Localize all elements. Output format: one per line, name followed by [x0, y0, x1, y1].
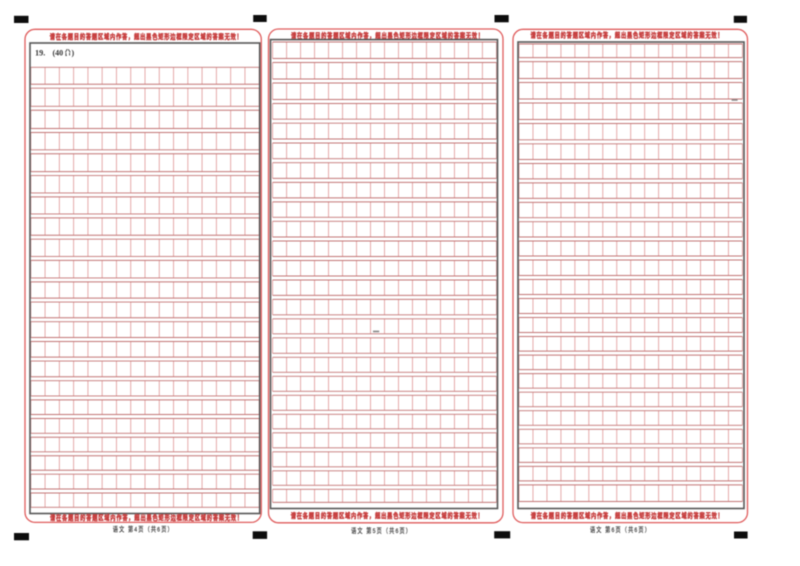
svg-text:请在各题目的答题区域内作答，超出黑色矩形边框限定区域的答案无: 请在各题目的答题区域内作答，超出黑色矩形边框限定区域的答案无效！	[291, 31, 484, 40]
svg-text:19.: 19.	[35, 48, 45, 57]
svg-text:语文 第6页（共6页）: 语文 第6页（共6页）	[590, 525, 651, 534]
svg-text:请在各题目的答题区域内作答，超出黑色矩形边框限定区域的答案无: 请在各题目的答题区域内作答，超出黑色矩形边框限定区域的答案无效！	[531, 30, 724, 39]
svg-text:请在各题目的答题区域内作答，超出黑色矩形边框限定区域的答案无: 请在各题目的答题区域内作答，超出黑色矩形边框限定区域的答案无效！	[50, 513, 243, 522]
svg-text:语文 第5页（共6页）: 语文 第5页（共6页）	[351, 526, 412, 535]
svg-text:请在各题目的答题区域内作答，超出黑色矩形边框限定区域的答案无: 请在各题目的答题区域内作答，超出黑色矩形边框限定区域的答案无效！	[50, 32, 243, 41]
svg-text:请在各题目的答题区域内作答，超出黑色矩形边框限定区域的答案无: 请在各题目的答题区域内作答，超出黑色矩形边框限定区域的答案无效！	[531, 511, 724, 520]
svg-text:语文 第4页（共6页）: 语文 第4页（共6页）	[113, 525, 174, 534]
svg-text:请在各题目的答题区域内作答，超出黑色矩形边框限定区域的答案无: 请在各题目的答题区域内作答，超出黑色矩形边框限定区域的答案无效！	[291, 511, 484, 520]
svg-text:(40: (40	[53, 48, 64, 57]
svg-text:): )	[72, 48, 75, 57]
